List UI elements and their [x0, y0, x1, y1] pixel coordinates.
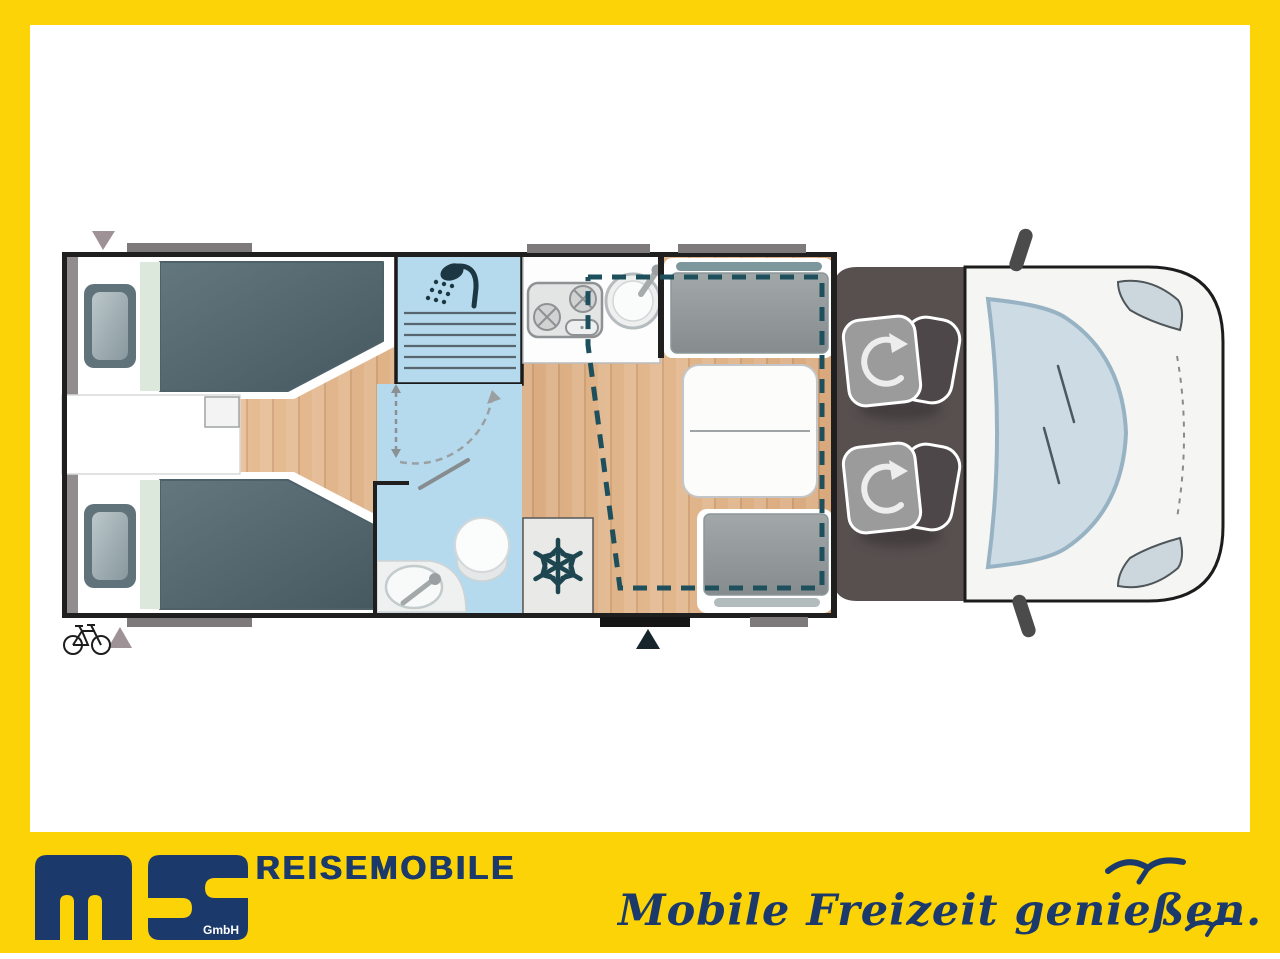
- content-area: [30, 25, 1250, 832]
- seagull-large-icon: [1108, 860, 1183, 871]
- company-wordmark: REISEMOBILE: [256, 851, 516, 884]
- logo-letter-m: [35, 855, 132, 940]
- logo-gmbh-label: GmbH: [203, 924, 239, 936]
- advert-canvas: REISEMOBILE GmbH Mobile Freizeit genieße…: [0, 0, 1280, 959]
- bottom-white-strip: [0, 953, 1280, 959]
- company-tagline: Mobile Freizeit genießen.: [618, 888, 1262, 935]
